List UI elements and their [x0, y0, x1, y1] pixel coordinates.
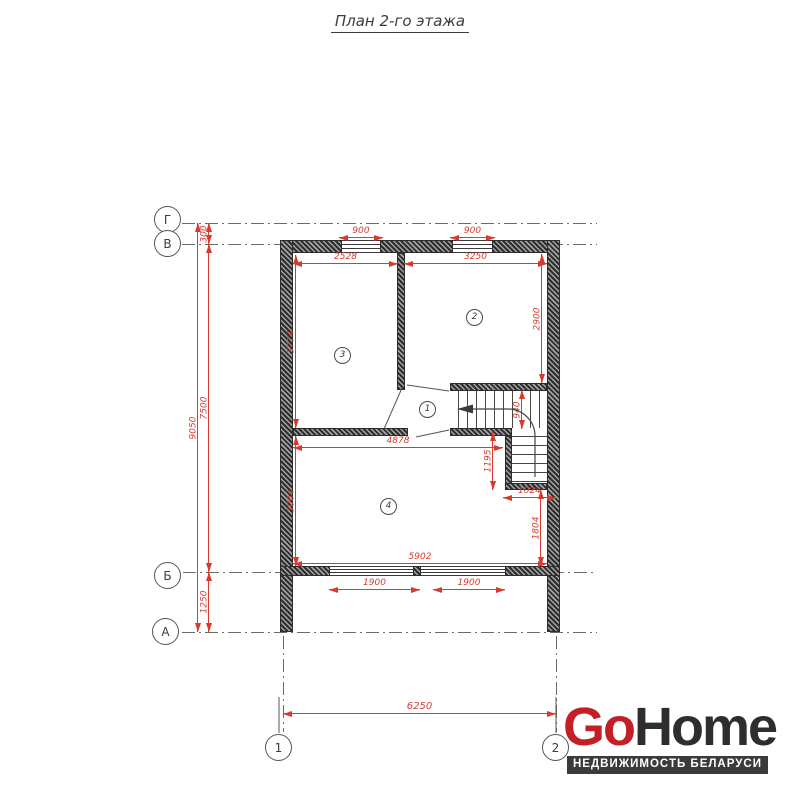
dimension-6250: 6250 — [283, 713, 556, 714]
door-leaf-room3 — [384, 388, 402, 429]
dimension-label: 1195 — [485, 450, 494, 473]
dimension-label: 1900 — [363, 579, 386, 588]
room-bubble-2: 2 — [466, 309, 483, 326]
dimension-900-right: 900 — [450, 237, 495, 238]
dimension-label: 900 — [464, 227, 481, 236]
dimension-1024: 1024 — [503, 497, 556, 498]
axis-line-1 — [283, 636, 284, 732]
room-bubble-3: 3 — [334, 347, 351, 364]
dimension-3774: 3774 — [295, 255, 296, 428]
gohome-logo: GoHome НЕДВИЖИМОСТЬ БЕЛАРУСИ — [563, 700, 776, 774]
dimension-label: 3774 — [288, 330, 297, 353]
stairs-lower-flight — [512, 436, 547, 483]
dimension-1804: 1804 — [540, 490, 541, 566]
dimension-label: 940 — [514, 401, 523, 418]
wall-top-middle — [380, 240, 453, 253]
dimension-940: 940 — [521, 390, 522, 429]
dimension-300: 300 — [208, 223, 209, 244]
dimension-label: 3004 — [288, 490, 297, 513]
door-opening-line-top — [407, 385, 449, 391]
window-bottom-1 — [330, 566, 413, 576]
dimension-5902: 5902 — [293, 563, 547, 564]
door-opening-line-bottom — [416, 430, 449, 437]
axis-label-b: Б — [163, 570, 171, 582]
room-number: 4 — [386, 502, 392, 511]
dimension-label: 300 — [201, 225, 210, 242]
dimension-1195: 1195 — [492, 432, 493, 490]
room-bubble-4: 4 — [380, 498, 397, 515]
axis-bubble-1: 1 — [265, 734, 292, 761]
plan-overlay-graphics — [0, 0, 800, 800]
dimension-label: 5902 — [409, 553, 432, 562]
axis-bubble-g: Г — [154, 206, 181, 233]
room-number: 2 — [472, 313, 478, 322]
axis-label-v: В — [163, 238, 171, 250]
wall-stair-bottom — [450, 428, 512, 436]
floor-plan-page: План 2-го этажа Г В Б А 1 2 900 900 2528… — [0, 0, 800, 800]
axis-label-g: Г — [164, 214, 171, 226]
room-number: 3 — [340, 351, 346, 360]
dimension-label: 9050 — [190, 416, 199, 439]
dimension-label: 1804 — [533, 517, 542, 540]
wall-interior-vertical — [397, 253, 405, 390]
window-bottom-2 — [421, 566, 505, 576]
axis-line-2 — [556, 636, 557, 732]
axis-label-a: А — [161, 626, 169, 638]
axis-label-2: 2 — [552, 742, 560, 754]
axis-bubble-v: В — [154, 230, 181, 257]
dimension-label: 1250 — [201, 591, 210, 614]
wall-stair-top — [450, 383, 547, 391]
wall-stair-side — [505, 436, 512, 490]
dimension-label: 7500 — [201, 397, 210, 420]
wall-bottom-right — [505, 566, 560, 576]
dimension-7500: 7500 — [208, 244, 209, 572]
wall-interior-horizontal — [293, 428, 408, 436]
logo-tagline: НЕДВИЖИМОСТЬ БЕЛАРУСИ — [567, 756, 768, 774]
axis-line-g — [182, 223, 597, 224]
axis-bubble-b: Б — [154, 562, 181, 589]
gohome-wordmark: GoHome — [563, 700, 776, 754]
dimension-label: 1900 — [458, 579, 481, 588]
dimension-900-left: 900 — [339, 237, 383, 238]
dimension-label: 4878 — [387, 437, 410, 446]
drawing-title: План 2-го этажа — [0, 11, 800, 33]
room-bubble-1: 1 — [419, 401, 436, 418]
wall-bottom-left — [280, 566, 330, 576]
room-number: 1 — [425, 405, 431, 414]
dimension-2900: 2900 — [541, 254, 542, 383]
stairs-upper-flight — [458, 391, 547, 428]
dimension-label: 900 — [352, 227, 369, 236]
wall-bottom-mullion — [413, 566, 421, 576]
dimension-2528: 2528 — [293, 263, 398, 264]
dimension-4878: 4878 — [293, 447, 503, 448]
axis-line-a — [182, 632, 597, 633]
dimension-3004: 3004 — [295, 436, 296, 566]
dimension-9050: 9050 — [197, 223, 198, 632]
logo-go-text: Go — [563, 697, 634, 757]
dimension-label: 6250 — [407, 702, 432, 712]
dimension-1250: 1250 — [208, 572, 209, 632]
dimension-label: 3250 — [464, 253, 487, 262]
dimension-1900-right: 1900 — [433, 589, 505, 590]
dimension-1900-left: 1900 — [329, 589, 420, 590]
dimension-label: 2900 — [534, 307, 543, 330]
logo-home-text: Home — [634, 697, 776, 757]
axis-label-1: 1 — [275, 742, 283, 754]
drawing-title-text: План 2-го этажа — [331, 12, 469, 33]
axis-bubble-a: А — [152, 618, 179, 645]
dimension-3250: 3250 — [404, 263, 547, 264]
dimension-label: 2528 — [334, 253, 357, 262]
